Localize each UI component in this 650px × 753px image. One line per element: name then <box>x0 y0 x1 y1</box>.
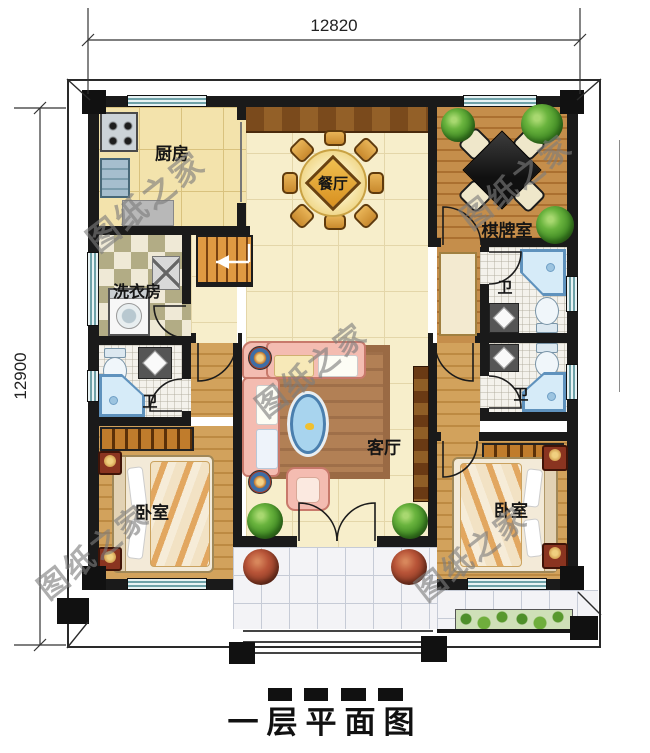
room-label-dining: 餐厅 <box>318 173 348 194</box>
bedroom-right-door <box>443 441 477 477</box>
vestibule-right-door <box>435 343 473 381</box>
floor-plan: 12820 12900 厨房 餐厅 棋牌室 洗衣房 卫 卫 卫 客厅 卧室 卧室… <box>0 0 650 753</box>
dimension-top-label: 12820 <box>310 16 357 35</box>
room-label-living: 客厅 <box>367 434 401 459</box>
room-label-bath-right-top: 卫 <box>497 277 512 298</box>
laundry-door <box>154 306 186 338</box>
stairs-arrow <box>216 244 249 269</box>
vestibule-left-door <box>198 343 236 381</box>
drawing-title: 一层平面图 <box>228 697 423 742</box>
entrance-door-right <box>337 503 375 541</box>
room-label-bath-left: 卫 <box>142 391 157 412</box>
dimension-left-label: 12900 <box>11 352 30 399</box>
room-label-bath-right-bottom: 卫 <box>513 384 528 405</box>
room-label-laundry: 洗衣房 <box>113 278 161 302</box>
entrance-door-left <box>299 503 337 541</box>
